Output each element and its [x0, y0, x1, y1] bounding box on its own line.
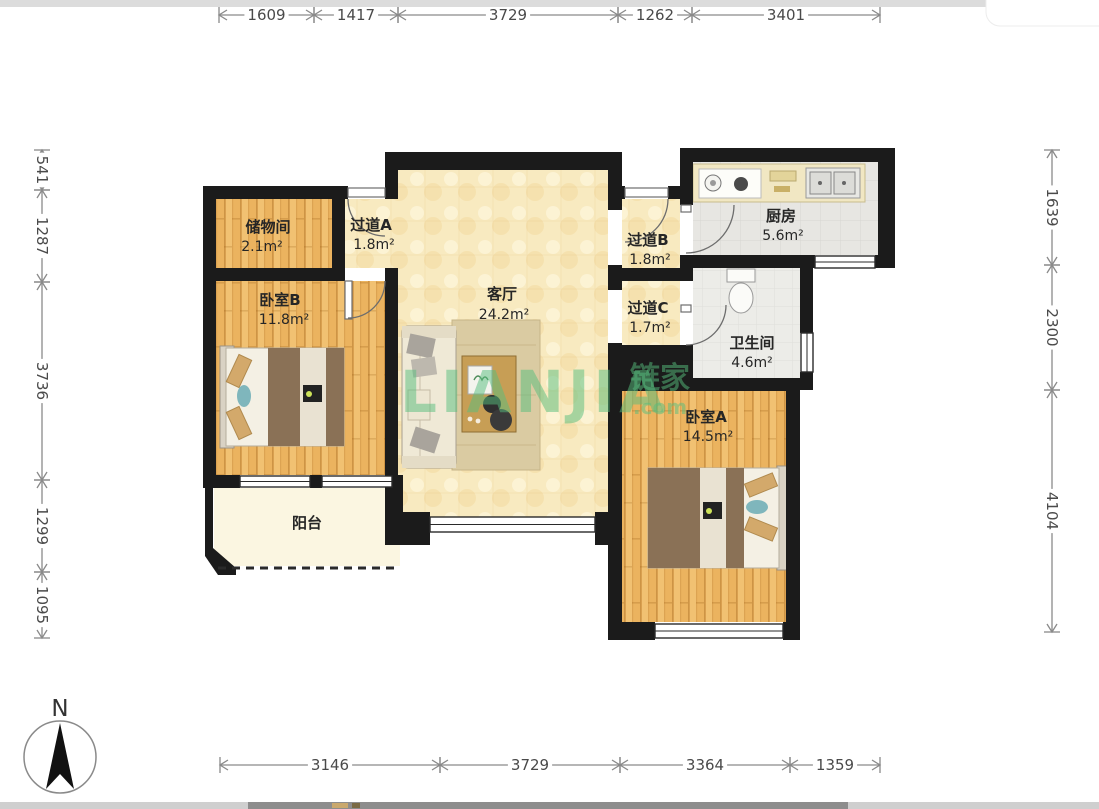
brand-watermark: LIANJIA [400, 358, 668, 426]
dimension-value: 1262 [636, 6, 674, 24]
dimension-segment: 1262 [618, 5, 692, 25]
bedroom-b-area: 11.8m² [259, 312, 309, 328]
dimension-value: 3736 [33, 362, 51, 400]
dimension-value: 1609 [247, 6, 285, 24]
dimension-segment: 541 [32, 150, 52, 190]
brand-watermark-cn: 链家 [630, 361, 690, 396]
watermark: LIANJIA 链家 .com [400, 358, 690, 426]
bed-a [648, 466, 789, 570]
dimension-segment: 3729 [398, 5, 618, 25]
bathroom-label: 卫生间 [729, 334, 774, 352]
hallway-b-label: 过道B [627, 231, 668, 249]
storage-room-area: 2.1m² [241, 239, 283, 255]
dimension-segment: 1095 [32, 572, 52, 638]
bedroom-a-area: 14.5m² [683, 429, 733, 445]
bathroom-area: 4.6m² [731, 355, 773, 371]
dimension-value: 1417 [337, 6, 375, 24]
dimension-segment: 3364 [620, 755, 790, 775]
dimension-value: 1299 [33, 507, 51, 545]
living-window [430, 517, 595, 532]
dimension-segment: 3401 [692, 5, 880, 25]
kitchen-counter [693, 164, 865, 202]
dimension-value: 1639 [1043, 188, 1061, 226]
compass: N [24, 696, 96, 793]
living-room-area: 24.2m² [479, 307, 529, 323]
compass-north-label: N [51, 696, 68, 722]
dimension-value: 3729 [511, 756, 549, 774]
dimension-segment: 3736 [32, 282, 52, 480]
floorplan-canvas: LIANJIA 链家 .com 储物间 2.1m² 过道A 1.8m² 客厅 2… [0, 0, 1099, 809]
dimension-value: 3401 [767, 6, 805, 24]
dimension-segment: 4104 [1042, 390, 1062, 632]
dimension-value: 2300 [1043, 308, 1061, 346]
hallway-c-label: 过道C [627, 299, 668, 317]
dimension-value: 3364 [686, 756, 724, 774]
bathroom-window [801, 333, 813, 372]
dimension-segment: 3146 [220, 755, 440, 775]
dimension-segment: 1609 [219, 5, 314, 25]
kitchen-area: 5.6m² [762, 228, 804, 244]
hallway-c-area: 1.7m² [629, 320, 671, 336]
hallway-b-area: 1.8m² [629, 252, 671, 268]
balcony-label: 阳台 [292, 514, 322, 532]
toilet [727, 269, 755, 313]
bedroom-b-label: 卧室B [259, 291, 300, 309]
dimension-segment: 1299 [32, 480, 52, 572]
dimension-value: 3146 [311, 756, 349, 774]
dimension-segment: 2300 [1042, 265, 1062, 390]
dimension-segment: 1287 [32, 190, 52, 282]
dimension-value: 4104 [1043, 492, 1061, 530]
bed-b [220, 346, 344, 448]
storage-room-label: 储物间 [245, 218, 290, 236]
dimension-segment: 3729 [440, 755, 620, 775]
dimension-value: 1287 [33, 217, 51, 255]
hallway-a-area: 1.8m² [353, 237, 395, 253]
dimension-segment: 1359 [790, 755, 880, 775]
dimension-segment: 1417 [314, 5, 398, 25]
bedroom-a-label: 卧室A [685, 408, 727, 426]
floorplan-page: LIANJIA 链家 .com 储物间 2.1m² 过道A 1.8m² 客厅 2… [0, 0, 1099, 809]
brand-watermark-domain: .com [633, 395, 687, 419]
dimension-segment: 1639 [1042, 150, 1062, 265]
bedroom-a-window [655, 624, 783, 638]
dimension-value: 541 [33, 156, 51, 185]
living-room-label: 客厅 [486, 285, 517, 303]
dimension-value: 1095 [33, 586, 51, 624]
dimension-value: 1359 [816, 756, 854, 774]
kitchen-label: 厨房 [766, 207, 796, 225]
dimension-value: 3729 [489, 6, 527, 24]
kitchen-window [815, 256, 875, 268]
hallway-a-label: 过道A [350, 216, 392, 234]
